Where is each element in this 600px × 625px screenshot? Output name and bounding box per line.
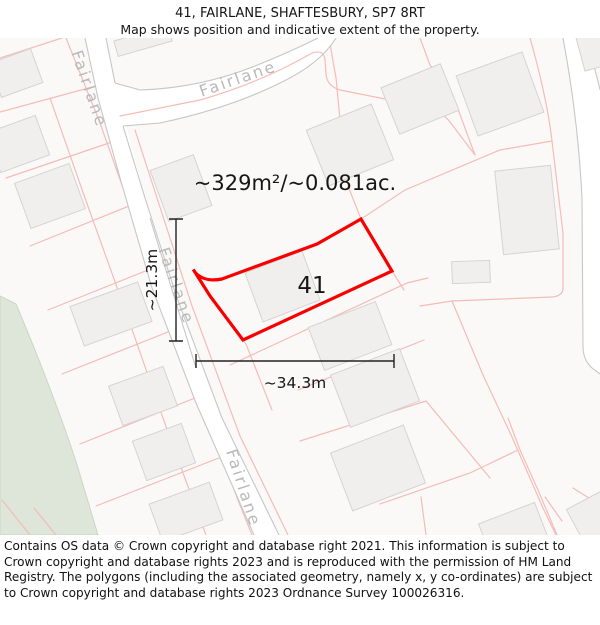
- copyright-notice: Contains OS data © Crown copyright and d…: [0, 535, 600, 601]
- building: [452, 260, 491, 283]
- plot-number-label: 41: [297, 273, 326, 299]
- page-subtitle: Map shows position and indicative extent…: [0, 22, 600, 38]
- width-dimension-label: ~34.3m: [264, 374, 327, 392]
- page-title: 41, FAIRLANE, SHAFTESBURY, SP7 8RT: [0, 5, 600, 22]
- height-dimension-label: ~21.3m: [143, 249, 161, 312]
- building: [495, 165, 559, 254]
- property-map: Fairlane Fairlane Fairlane Fairlane ~329…: [0, 38, 600, 535]
- map-header: 41, FAIRLANE, SHAFTESBURY, SP7 8RT Map s…: [0, 0, 600, 38]
- map-canvas: Fairlane Fairlane Fairlane Fairlane ~329…: [0, 38, 600, 535]
- area-label: ~329m²/~0.081ac.: [194, 171, 396, 195]
